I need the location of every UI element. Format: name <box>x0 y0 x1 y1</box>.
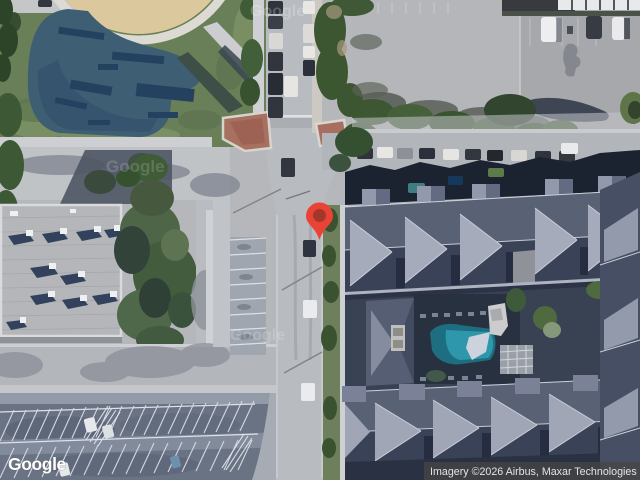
svg-text:Google: Google <box>250 3 305 20</box>
svg-text:Google: Google <box>106 157 165 176</box>
svg-text:Imagery ©2026 Airbus, Maxar Te: Imagery ©2026 Airbus, Maxar Technologies <box>430 466 637 478</box>
svg-text:Google: Google <box>230 327 285 344</box>
svg-text:Google: Google <box>8 454 67 474</box>
